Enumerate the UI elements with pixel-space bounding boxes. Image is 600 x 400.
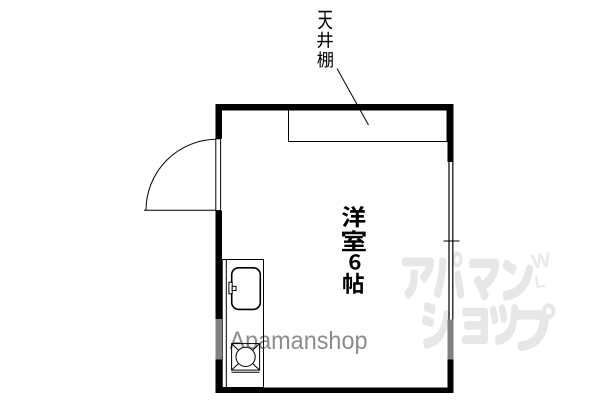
svg-text:W: W bbox=[530, 249, 552, 273]
